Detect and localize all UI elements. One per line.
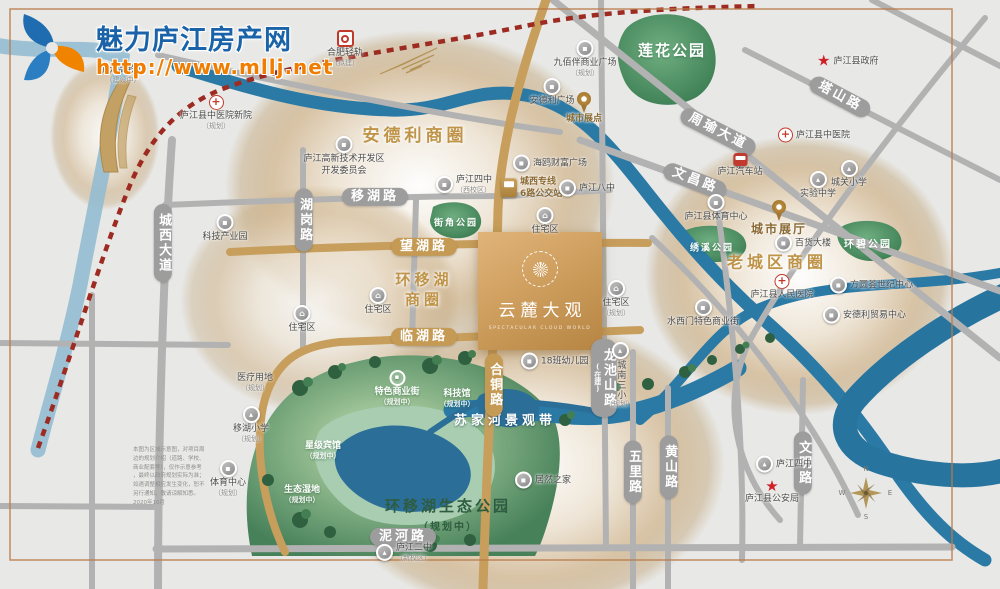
poi-text: 移湖小学（规划） xyxy=(233,423,269,443)
property-subtitle: SPECTACULAR CLOUD WORLD xyxy=(489,326,591,331)
poi-label: 城市展点 xyxy=(566,114,602,125)
logo-url[interactable]: http://www.mllj.net xyxy=(96,55,333,79)
hospital-cross-icon: + xyxy=(778,128,793,143)
map-poi[interactable]: ▪18班幼儿园 xyxy=(521,353,588,370)
map-poi[interactable]: 城西专线6路公交站 xyxy=(501,176,562,200)
poi-text: 庐江县公安局 xyxy=(745,493,799,505)
park-label: 莲花公园 xyxy=(638,40,706,61)
map-poi[interactable]: ⌂住宅区 xyxy=(364,287,391,316)
poi-status: （拟建） xyxy=(331,59,359,67)
building-dot-icon: ▪ xyxy=(436,176,453,193)
poi-text: 城市展点 xyxy=(566,113,602,125)
road-name: 湖岗路 xyxy=(297,198,312,243)
building-dot-icon: ▪ xyxy=(576,40,593,57)
poi-text: 庐江县政府 xyxy=(833,55,878,67)
school-icon: ▴ xyxy=(612,342,629,359)
poi-label: 百货大楼 xyxy=(795,238,831,249)
disclaimer-line: 商业配套等），仅作示意参考 xyxy=(133,464,205,473)
metro-icon xyxy=(336,30,353,47)
poi-status: （规划） xyxy=(602,309,630,317)
poi-label: 城西专线 xyxy=(520,177,556,188)
logo-title: 魅力庐江房产网 xyxy=(96,18,333,57)
compass-east: E xyxy=(888,489,892,497)
poi-text: 安德利贸易中心 xyxy=(843,309,906,321)
poi-status: （规划） xyxy=(202,122,230,130)
poi-text: 星级宾馆（规划中） xyxy=(305,440,341,460)
road-label-pill: 黄山路 xyxy=(660,436,678,499)
poi-label: 18班幼儿园 xyxy=(541,356,588,367)
house-icon: ⌂ xyxy=(608,280,625,297)
poi-text: 住宅区（规划） xyxy=(602,297,630,317)
hospital-cross-icon: + xyxy=(774,274,789,289)
poi-status: （规划中） xyxy=(284,496,319,504)
poi-label: 6路公交站 xyxy=(520,189,562,200)
poi-label: 居然之家 xyxy=(535,475,571,486)
poi-label: 庐江四中 xyxy=(456,175,492,186)
location-pin-icon xyxy=(772,200,786,221)
poi-text: 生态湿地（规划中） xyxy=(284,484,320,504)
map-poi[interactable]: ▴城南三小（规划） xyxy=(606,342,634,408)
road-label-pill: 移湖路 xyxy=(342,188,408,206)
poi-label: 九佰伴商业广场 xyxy=(553,58,616,69)
map-poi[interactable]: 科技馆（规划中） xyxy=(440,388,475,408)
map-poi[interactable]: +庐江县中医院 xyxy=(778,128,850,143)
poi-status: （规划） xyxy=(241,384,269,392)
poi-label: 庐江八中 xyxy=(579,183,615,194)
building-dot-icon: ▪ xyxy=(694,299,711,316)
poi-text: 体育中心（规划） xyxy=(210,477,246,497)
zone-line: 老城区商圈 xyxy=(727,253,827,274)
poi-text: 庐江县人民医院 xyxy=(750,289,813,301)
poi-label: 庐江县中医院 xyxy=(796,130,850,141)
poi-label: 实验中学 xyxy=(800,189,836,200)
poi-status: （规划中） xyxy=(440,400,475,408)
poi-label: 庐江县公安局 xyxy=(745,494,799,505)
park-label: 街角公园 xyxy=(434,216,478,229)
building-dot-icon: ▪ xyxy=(219,460,236,477)
road-status: (在建) xyxy=(593,348,601,408)
disclaimer: 本图为区域示意图，对项目周边的规划介绍（道路、学校、商业配套等），仅作示意参考，… xyxy=(133,446,205,508)
disclaimer-line: ，最终以政府规划实际为准； xyxy=(133,472,205,481)
poi-status: （西校区） xyxy=(456,186,491,194)
poi-text: 居然之家 xyxy=(535,474,571,486)
map-poi[interactable]: ⌂住宅区（规划） xyxy=(602,280,630,317)
school-icon: ▴ xyxy=(242,406,259,423)
poi-label: 方圆荟世纪中心 xyxy=(850,280,913,291)
poi-text: 庐江汽车站 xyxy=(717,166,762,178)
building-dot-icon: ▪ xyxy=(216,214,233,231)
road-label-pill: 望湖路 xyxy=(391,238,457,256)
poi-label: 庐江汽车站 xyxy=(717,167,762,178)
bus-station-icon xyxy=(733,153,747,166)
poi-text: 18班幼儿园 xyxy=(541,355,588,367)
poi-text: 城西专线6路公交站 xyxy=(520,176,562,200)
pinwheel-logo-icon xyxy=(12,8,92,88)
property-name: 云麓大观 xyxy=(499,296,587,321)
disclaimer-line: 边的规划介绍（道路、学校、 xyxy=(133,455,205,464)
school-icon: ▴ xyxy=(809,171,826,188)
map-poi[interactable]: ▪庐江八中 xyxy=(559,180,615,197)
poi-text: 科技产业园 xyxy=(202,231,247,243)
poi-status: （规划） xyxy=(571,69,599,77)
house-icon: ⌂ xyxy=(536,207,553,224)
school-icon: ▴ xyxy=(756,456,773,473)
road-name: 望湖路 xyxy=(400,239,448,254)
property-card[interactable]: 云麓大观 SPECTACULAR CLOUD WORLD xyxy=(478,232,602,350)
poi-label: 庐江县中医院新院 xyxy=(180,111,252,122)
house-icon: ⌂ xyxy=(369,287,386,304)
road-name: 合铜路 xyxy=(487,363,502,408)
poi-text: 庐江八中 xyxy=(579,182,615,194)
poi-text: 特色商业街（规划中） xyxy=(374,386,419,406)
hospital-cross-icon: + xyxy=(208,95,223,110)
building-dot-icon: ▪ xyxy=(823,307,840,324)
poi-text: 庐江高新技术开发区开发委员会 xyxy=(303,153,384,177)
map-poi[interactable]: ▴城关小学 xyxy=(831,160,867,189)
map-poi[interactable]: ▴庐江四中 xyxy=(756,456,812,473)
commercial-zone-label: 环移湖商圈 xyxy=(395,271,452,310)
road-name: 临湖路 xyxy=(400,329,448,344)
disclaimer-line: 2020年10月 xyxy=(133,499,205,508)
building-dot-icon: ▪ xyxy=(830,277,847,294)
poi-text: 科技馆（规划中） xyxy=(440,388,475,408)
poi-status: （规划） xyxy=(214,489,242,497)
school-icon: ▴ xyxy=(376,544,393,561)
poi-label: 科技馆 xyxy=(443,389,470,400)
map-poi[interactable]: ⌂住宅区 xyxy=(531,207,558,236)
star-icon: ★ xyxy=(765,480,778,493)
poi-text: 海鸥财富广场 xyxy=(533,157,587,169)
location-pin-icon xyxy=(577,92,591,113)
poi-label: 住宅区 xyxy=(531,225,558,236)
map-poi[interactable]: ▪居然之家 xyxy=(515,472,571,489)
poi-label: 住宅区 xyxy=(288,323,315,334)
river-label: 苏家河景观带 xyxy=(454,410,556,429)
zone-line: 环移湖 xyxy=(395,271,452,291)
poi-label: 特色商业街 xyxy=(374,387,419,398)
poi-text: 庐江二中（新校区） xyxy=(396,542,432,562)
map-poi[interactable]: 医疗用地（规划） xyxy=(237,372,273,392)
poi-label: 生态湿地 xyxy=(284,485,320,496)
poi-text: 庐江四中 xyxy=(776,458,812,470)
poi-text: 住宅区 xyxy=(531,224,558,236)
disclaimer-line: 本图为区域示意图，对项目周 xyxy=(133,446,205,455)
poi-label: 庐江四中 xyxy=(776,459,812,470)
poi-label: 开发委员会 xyxy=(321,166,366,177)
house-icon: ⌂ xyxy=(293,305,310,322)
map-poi[interactable]: ▪海鸥财富广场 xyxy=(513,155,587,172)
compass-west: W xyxy=(839,489,846,497)
building-dot-icon: ▪ xyxy=(521,353,538,370)
poi-text: 庐江县体育中心 xyxy=(684,211,747,223)
road-label-pill: 五里路 xyxy=(624,441,642,504)
map-poi[interactable]: ▴庐江二中（新校区） xyxy=(376,542,432,562)
map-poi[interactable]: 城市展厅 xyxy=(751,200,807,236)
road-name: 五里路 xyxy=(626,450,641,495)
map-poi[interactable]: ▪百货大楼 xyxy=(775,235,831,252)
building-dot-icon: ▪ xyxy=(513,155,530,172)
building-dot-icon: ▪ xyxy=(515,472,532,489)
map-poi[interactable]: ▪九佰伴商业广场（规划） xyxy=(553,40,616,77)
map-poi[interactable]: ⌂住宅区 xyxy=(288,305,315,334)
road-name: 城西大道 xyxy=(156,213,171,273)
poi-label: 水西门特色商业街 xyxy=(667,317,739,328)
map-poi[interactable]: 生态湿地（规划中） xyxy=(284,484,320,504)
poi-text: 水西门特色商业街 xyxy=(667,316,739,328)
poi-text: 实验中学 xyxy=(800,188,836,200)
map-poi[interactable]: ▪科技产业园 xyxy=(202,214,247,243)
map-poi[interactable]: ▪庐江高新技术开发区开发委员会 xyxy=(303,136,384,177)
disclaimer-line: 如遇调整相应发生变化，恕不 xyxy=(133,481,205,490)
poi-label: 医疗用地 xyxy=(237,373,273,384)
poi-label: 住宅区 xyxy=(602,298,629,309)
compass-north: N xyxy=(863,465,868,473)
bus-line-icon xyxy=(501,179,517,198)
map-poi[interactable]: ▴移湖小学（规划） xyxy=(233,406,269,443)
map-poi[interactable]: ▪方圆荟世纪中心 xyxy=(830,277,913,294)
poi-label: 庐江县体育中心 xyxy=(684,212,747,223)
building-dot-icon: ▪ xyxy=(335,136,352,153)
poi-label: 庐江县政府 xyxy=(833,56,878,67)
poi-status: （规划中） xyxy=(305,452,340,460)
poi-status: （规划） xyxy=(606,400,634,408)
zone-line: 商圈 xyxy=(395,290,452,310)
poi-text: 九佰伴商业广场（规划） xyxy=(553,57,616,77)
poi-status: （新校区） xyxy=(396,554,431,562)
building-dot-icon: ▪ xyxy=(559,180,576,197)
poi-text: 百货大楼 xyxy=(795,237,831,249)
poi-label: 星级宾馆 xyxy=(305,441,341,452)
poi-label: 海鸥财富广场 xyxy=(533,158,587,169)
poi-text: 住宅区 xyxy=(364,304,391,316)
map-poi[interactable]: 星级宾馆（规划中） xyxy=(305,440,341,460)
poi-text: 城关小学 xyxy=(831,177,867,189)
poi-label: 科技产业园 xyxy=(202,232,247,243)
poi-label: 庐江高新技术开发区 xyxy=(303,154,384,165)
park-label: 环碧公园 xyxy=(844,236,892,251)
school-icon: ▴ xyxy=(840,160,857,177)
map-poi[interactable]: ▪水西门特色商业街 xyxy=(667,299,739,328)
map-poi[interactable]: ▪庐江四中（西校区） xyxy=(436,174,492,194)
white-dot-icon: ▪ xyxy=(389,370,405,386)
map-poi[interactable]: ▪体育中心（规划） xyxy=(210,460,246,497)
road-label-pill: 合铜路 xyxy=(485,354,503,417)
map-poi[interactable]: ▪特色商业街（规划中） xyxy=(374,370,419,406)
site-logo[interactable]: 魅力庐江房产网 http://www.mllj.net xyxy=(12,8,333,88)
road-label-pill: 临湖路 xyxy=(391,328,457,346)
road-name: 黄山路 xyxy=(662,445,677,490)
map-poi[interactable]: ▪安德利贸易中心 xyxy=(823,307,906,324)
poi-text: 庐江四中（西校区） xyxy=(456,174,492,194)
map-poi[interactable]: 庐江汽车站 xyxy=(717,153,762,178)
building-dot-icon: ▪ xyxy=(775,235,792,252)
road-label-pill: 湖岗路 xyxy=(295,189,313,252)
poi-label: 城南三小 xyxy=(615,360,626,400)
poi-text: 庐江县中医院新院（规划） xyxy=(180,110,252,130)
map-poi[interactable]: ★庐江县政府 xyxy=(817,55,878,68)
commercial-zone-label: 老城区商圈 xyxy=(727,253,827,274)
map-poi[interactable]: ▪庐江县体育中心 xyxy=(684,194,747,223)
park-label: 绣溪公园 xyxy=(690,241,734,254)
building-dot-icon: ▪ xyxy=(707,194,724,211)
poi-label: 庐江二中 xyxy=(396,543,432,554)
poi-status: （规划） xyxy=(237,435,265,443)
poi-label: 城关小学 xyxy=(831,178,867,189)
disclaimer-line: 另行通知，敬请谅解知悉。 xyxy=(133,490,205,499)
location-map: 云麓大观 SPECTACULAR CLOUD WORLD 魅力庐江房产网 htt… xyxy=(0,0,1000,589)
building-dot-icon: ▪ xyxy=(543,78,560,95)
poi-label: 体育中心 xyxy=(210,478,246,489)
map-poi[interactable]: ★庐江县公安局 xyxy=(745,480,799,505)
property-logo-icon xyxy=(522,251,558,287)
poi-text: 住宅区 xyxy=(288,322,315,334)
map-poi[interactable]: 城市展点 xyxy=(566,92,602,125)
poi-text: 医疗用地（规划） xyxy=(237,372,273,392)
map-poi[interactable]: ▴实验中学 xyxy=(800,171,836,200)
compass-south: S xyxy=(864,513,868,521)
poi-text: 方圆荟世纪中心 xyxy=(850,279,913,291)
poi-label: 庐江县人民医院 xyxy=(750,290,813,301)
eco-park-name: 环移湖生态公园 xyxy=(385,495,511,516)
poi-text: 庐江县中医院 xyxy=(796,129,850,141)
poi-text: 城南三小（规划） xyxy=(606,359,634,408)
road-name: 移湖路 xyxy=(351,189,399,204)
poi-status: （规划中） xyxy=(379,398,414,406)
logo-text: 魅力庐江房产网 http://www.mllj.net xyxy=(96,18,333,79)
map-poi[interactable]: +庐江县人民医院 xyxy=(750,274,813,301)
star-icon: ★ xyxy=(817,55,830,68)
poi-label: 安德利贸易中心 xyxy=(843,310,906,321)
map-poi[interactable]: +庐江县中医院新院（规划） xyxy=(180,95,252,130)
poi-label: 移湖小学 xyxy=(233,424,269,435)
road-label-pill: 城西大道 xyxy=(154,204,172,282)
poi-label: 住宅区 xyxy=(364,305,391,316)
